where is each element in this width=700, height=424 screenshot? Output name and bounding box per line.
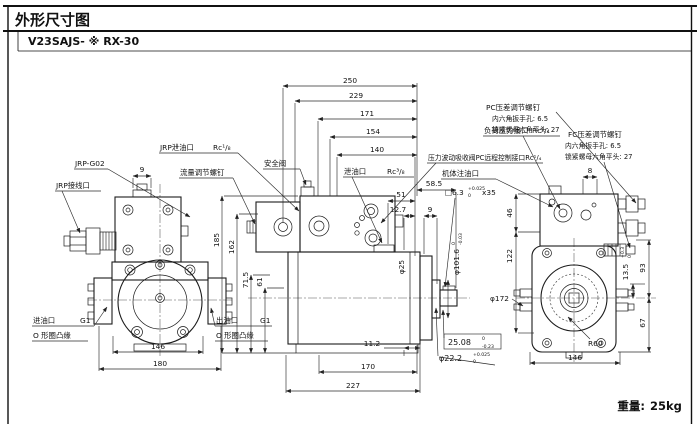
dim-250: 250 (343, 76, 357, 85)
side-view-labels: JRP泄油口 Rc¹/₈ 流量调节螺钉 安全阀 泄油口 Rc³/₈ (159, 143, 414, 243)
dimension-drawing: 外形尺寸图 V23SAJS- ※ RX-30 重量: 25kg (0, 0, 700, 424)
jrp-solenoid (64, 228, 116, 254)
dim-11-2: 11.2 (364, 339, 380, 348)
svg-text:25.08: 25.08 (448, 338, 471, 347)
label-jrp-wiring-port: JRP接线口 (55, 181, 90, 190)
dim-162: 162 (227, 240, 236, 254)
label-jrp-drain-port: JRP泄油口 (159, 143, 194, 152)
dim-46: 46 (505, 208, 514, 218)
dim-phi22-2: φ22.2 +0.025 0 (436, 308, 495, 365)
dim-58-5: 58.5 (426, 179, 443, 188)
dim-61: 61 (255, 277, 264, 287)
label-safety-valve: 安全阀 (264, 159, 286, 168)
model-code: V23SAJS- ※ RX-30 (28, 35, 139, 48)
label-outlet-size: G1 (260, 316, 271, 325)
svg-text:+0.025: +0.025 (473, 352, 490, 358)
dim-154: 154 (366, 127, 380, 136)
svg-text:0: 0 (482, 336, 485, 342)
label-outlet-port: 出油口 (216, 316, 238, 325)
svg-text:x35: x35 (482, 188, 496, 197)
svg-text:-0.03: -0.03 (458, 233, 464, 245)
svg-text:□6.3: □6.3 (445, 188, 464, 197)
side-view-dimensions-bottom: φ25 φ101.6 0 -0.03 11.2 170 227 25.08 0 … (286, 233, 501, 393)
side-view-dimensions-left: 185 162 71.5 61 (212, 196, 298, 353)
dim-170: 170 (361, 362, 375, 371)
weight-value: 25kg (650, 399, 682, 413)
label-drain-size: Rc³/₈ (387, 167, 405, 176)
rear-view (514, 186, 656, 362)
svg-text:13.5: 13.5 (621, 263, 630, 280)
label-inlet-port: 进油口 (33, 316, 55, 325)
dim-8: 8 (588, 166, 593, 175)
dim-12-7: 12.7 (390, 205, 407, 214)
dim-146-right: 146 (568, 353, 582, 362)
svg-text:φ101.6: φ101.6 (452, 249, 461, 275)
dim-185: 185 (212, 233, 221, 247)
dim-140: 140 (370, 145, 384, 154)
weight-label: 重量: (617, 399, 645, 413)
label-drain-port: 泄油口 (344, 167, 366, 176)
pc-adjust-screw (618, 196, 645, 212)
dim-171: 171 (360, 109, 374, 118)
label-body-fill-port: 机体注油口 (442, 169, 479, 178)
dim-93: 93 (638, 263, 647, 273)
dim-9-mid: 9 (428, 205, 433, 214)
label-load-port: 负荷压力接口 (484, 126, 528, 135)
label-jrp-model: JRP-G02 (74, 159, 105, 168)
dim-r60: R60 (588, 339, 603, 348)
svg-text:0: 0 (451, 242, 457, 245)
dim-9-left: 9 (140, 165, 145, 174)
svg-text:0: 0 (468, 193, 471, 199)
dim-phi172: φ172 (490, 294, 509, 303)
label-inlet-size: G1 (80, 316, 91, 325)
label-fc-screw-hex: 内六角扳手孔: 6.5 (565, 141, 621, 150)
dim-71-5: 71.5 (241, 271, 250, 288)
dim-122: 122 (505, 249, 514, 263)
dim-phi101-6: φ101.6 0 -0.03 (448, 233, 464, 318)
label-pc-screw-hex: 内六角扳手孔: 6.5 (492, 114, 548, 123)
dim-25-08-box: 25.08 0 -0.23 (443, 310, 501, 350)
label-fc-screw-nut: 锁紧螺母六角平头: 27 (565, 152, 632, 161)
label-pc-remote-port: 压力波动吸收阀PC远程控制接口Rc¹/₄ (428, 153, 542, 162)
page-title: 外形尺寸图 (14, 11, 90, 29)
label-jrp-drain-size: Rc¹/₈ (213, 143, 231, 152)
label-flow-screw: 流量调节螺钉 (180, 168, 225, 177)
dim-229: 229 (349, 91, 363, 100)
dim-180: 180 (153, 359, 167, 368)
svg-text:0: 0 (627, 255, 633, 258)
label-inlet-flange: O 形圈凸缘 (33, 331, 71, 340)
dim-67: 67 (638, 318, 647, 328)
dim-227: 227 (346, 381, 360, 390)
dim-146-left: 146 (151, 342, 165, 351)
label-fc-screw: FC压差调节螺钉 (568, 130, 622, 139)
svg-text:+0.3: +0.3 (620, 247, 626, 258)
dim-phi25: φ25 (397, 260, 406, 275)
front-view (64, 184, 232, 356)
svg-text:-0.23: -0.23 (482, 344, 494, 350)
label-pc-screw: PC压差调节螺钉 (486, 103, 541, 112)
page-frame (3, 6, 697, 424)
label-load-port-size: Rc¹/₄ (532, 126, 550, 135)
front-view-labels: JRP-G02 JRP接线口 进油口 G1 O 形圈凸缘 出油口 G1 O 形圈… (32, 159, 272, 341)
